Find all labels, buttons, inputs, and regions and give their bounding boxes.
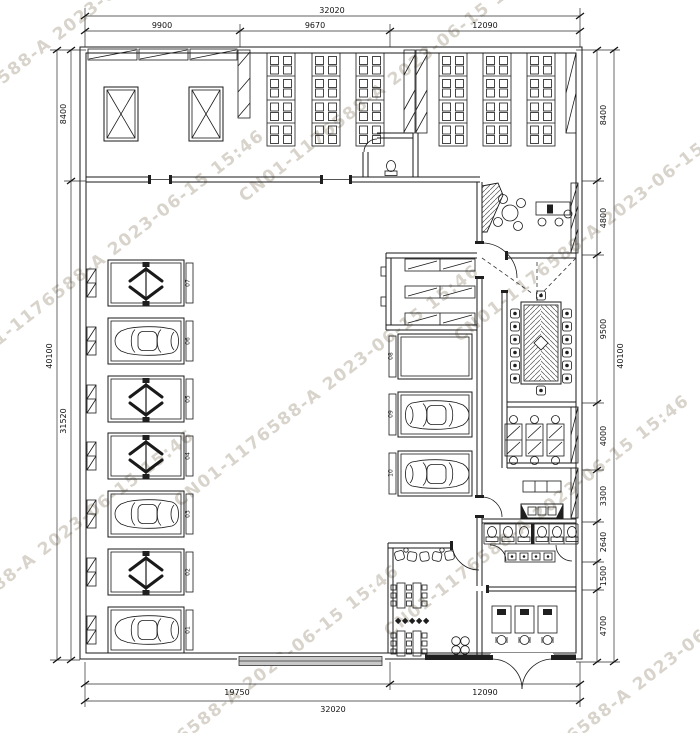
- armchair-row: [394, 548, 455, 562]
- br-office: [492, 606, 557, 645]
- dim-top-overall: 32020: [319, 6, 344, 15]
- bay-label: 09: [388, 410, 395, 418]
- equipment-box: [104, 87, 138, 141]
- dim-right-seg1: 8400: [599, 105, 608, 125]
- bay-label: 08: [388, 352, 395, 360]
- work-bay: 02: [87, 549, 193, 595]
- middle-bay-2: 09: [388, 392, 473, 437]
- round-table: [502, 205, 518, 221]
- dim-bottom-seg2: 12090: [472, 688, 497, 697]
- sliding-door: [239, 657, 382, 666]
- bay-label: 04: [185, 452, 192, 460]
- dim-top-seg3: 12090: [472, 21, 497, 30]
- door-arc: [482, 243, 517, 278]
- room-topleft: [88, 49, 237, 141]
- bay-label: 03: [185, 510, 192, 518]
- office-desks: [505, 416, 564, 465]
- dim-top-seg2: 9670: [305, 21, 325, 30]
- floor-plan-canvas: CN01-1176588-A 2023-06-15 15:46 CN01-117…: [0, 0, 700, 733]
- monitor-icon: [547, 205, 553, 214]
- storefront-sill: [554, 655, 576, 661]
- watermark-layer: CN01-1176588-A 2023-06-15 15:46 CN01-117…: [0, 0, 700, 733]
- lounge-tables-2: [391, 631, 427, 656]
- watermark-text: CN01-1176588-A 2023-06-15 15:46: [0, 126, 268, 377]
- dim-bottom-overall: 32020: [320, 705, 345, 714]
- dim-top-seg1: 9900: [152, 21, 172, 30]
- work-bay: 01: [87, 607, 193, 653]
- work-bay: 06: [87, 318, 193, 364]
- dim-left-overall: 40100: [45, 343, 54, 368]
- bay-label: 06: [185, 337, 192, 345]
- dim-left-seg2: 31520: [59, 408, 68, 433]
- dim-right-seg4: 4000: [599, 426, 608, 446]
- sink-counter: [505, 551, 555, 562]
- bay-label: 10: [388, 469, 395, 477]
- watermark-text: CN01-1176588-A 2023-06-15 15:46: [0, 426, 198, 677]
- reception-desk: [482, 183, 503, 232]
- bay-label: 01: [185, 626, 192, 634]
- dim-right-seg2: 4800: [599, 208, 608, 228]
- dim-bottom-seg1: 19750: [224, 688, 249, 697]
- door-arc: [482, 497, 502, 517]
- equipment-box: [189, 87, 223, 141]
- wc-room: [363, 133, 418, 177]
- conference-room: [511, 291, 572, 395]
- dim-right-seg6: 2640: [599, 532, 608, 552]
- dim-right-seg3: 9500: [599, 319, 608, 339]
- dim-right-overall: 40100: [616, 343, 625, 368]
- reception-office: [482, 183, 572, 232]
- watermark-text: CN01-1176588-A 2023-06-15 15:46: [90, 561, 403, 733]
- door-arc: [556, 545, 572, 561]
- dim-right-seg7: 1500: [599, 566, 608, 586]
- middle-bay-3: 10: [388, 451, 473, 496]
- dim-right-seg8: 4700: [599, 616, 608, 636]
- dim-left-seg1: 8400: [59, 104, 68, 124]
- bay-label: 07: [185, 279, 192, 287]
- bay-label: 02: [185, 568, 192, 576]
- bay-label: 05: [185, 395, 192, 403]
- storefront-sill: [425, 655, 490, 661]
- dim-right-seg5: 3300: [599, 486, 608, 506]
- work-bay: 05: [87, 376, 193, 422]
- clover-table: [452, 637, 470, 655]
- door-arc: [364, 139, 377, 152]
- floor-plan-drawing: CN01-1176588-A 2023-06-15 15:46 CN01-117…: [0, 0, 700, 733]
